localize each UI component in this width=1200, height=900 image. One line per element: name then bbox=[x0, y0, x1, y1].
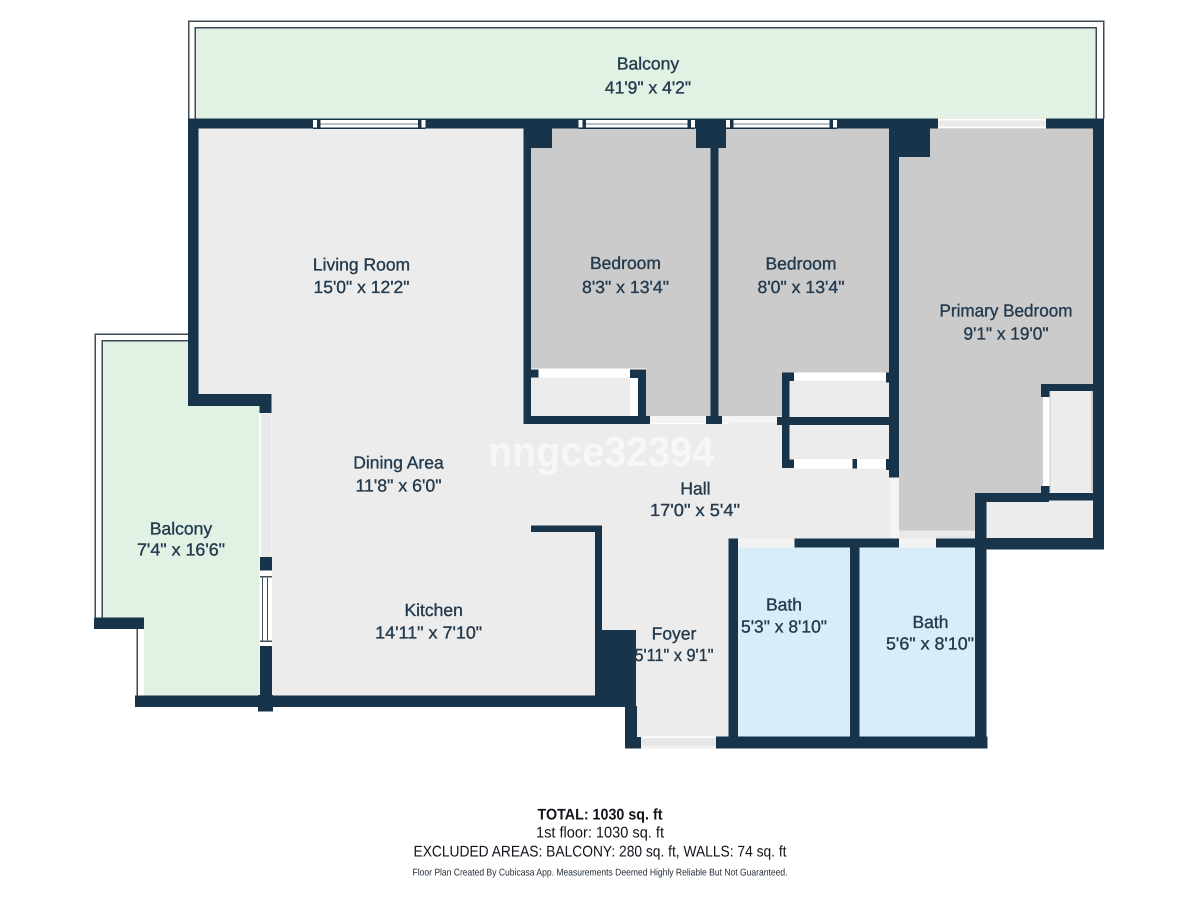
svg-text:17'0" x 5'4": 17'0" x 5'4" bbox=[650, 500, 740, 520]
svg-text:Bath: Bath bbox=[766, 595, 802, 615]
svg-text:Bath: Bath bbox=[913, 612, 949, 632]
svg-text:TOTAL: 1030 sq. ft: TOTAL: 1030 sq. ft bbox=[538, 807, 663, 824]
svg-text:EXCLUDED AREAS: BALCONY: 280 s: EXCLUDED AREAS: BALCONY: 280 sq. ft, WAL… bbox=[414, 844, 788, 861]
svg-text:Bedroom: Bedroom bbox=[765, 254, 836, 274]
svg-text:5'6" x 8'10": 5'6" x 8'10" bbox=[886, 634, 974, 654]
svg-text:11'8" x 6'0": 11'8" x 6'0" bbox=[356, 476, 442, 496]
svg-text:1st floor: 1030 sq. ft: 1st floor: 1030 sq. ft bbox=[536, 825, 665, 842]
svg-text:5'11" x 9'1": 5'11" x 9'1" bbox=[635, 645, 714, 665]
svg-text:Dining Area: Dining Area bbox=[353, 453, 444, 473]
svg-text:8'3" x 13'4": 8'3" x 13'4" bbox=[582, 277, 669, 297]
svg-text:Floor Plan Created By Cubicasa: Floor Plan Created By Cubicasa App. Meas… bbox=[413, 868, 788, 879]
svg-text:Bedroom: Bedroom bbox=[590, 253, 661, 273]
svg-text:Kitchen: Kitchen bbox=[405, 600, 463, 620]
svg-text:7'4" x 16'6": 7'4" x 16'6" bbox=[137, 540, 225, 560]
svg-text:14'11" x 7'10": 14'11" x 7'10" bbox=[375, 623, 482, 643]
svg-text:41'9" x 4'2": 41'9" x 4'2" bbox=[605, 78, 691, 98]
svg-text:15'0" x 12'2": 15'0" x 12'2" bbox=[314, 277, 410, 297]
svg-text:9'1" x 19'0": 9'1" x 19'0" bbox=[964, 324, 1049, 344]
svg-text:5'3" x 8'10": 5'3" x 8'10" bbox=[741, 617, 827, 637]
svg-text:Hall: Hall bbox=[680, 479, 710, 499]
svg-text:Balcony: Balcony bbox=[617, 54, 680, 74]
svg-text:nngce32394: nngce32394 bbox=[488, 428, 715, 475]
svg-text:8'0" x 13'4": 8'0" x 13'4" bbox=[758, 277, 845, 297]
svg-text:Foyer: Foyer bbox=[652, 624, 697, 644]
svg-text:Living Room: Living Room bbox=[313, 255, 410, 275]
svg-text:Primary Bedroom: Primary Bedroom bbox=[940, 301, 1073, 321]
svg-text:Balcony: Balcony bbox=[150, 519, 213, 539]
